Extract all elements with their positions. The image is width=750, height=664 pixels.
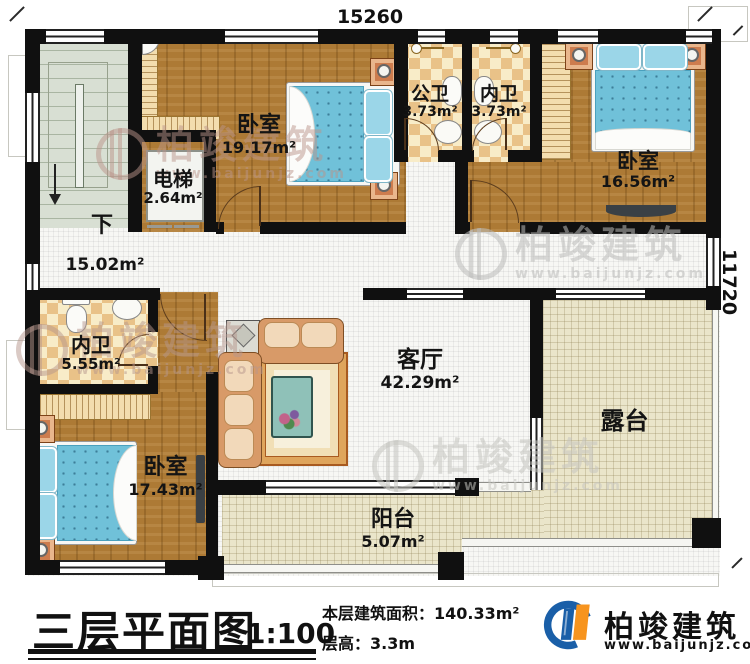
- door-leaf: [505, 118, 507, 150]
- ensuite-top-label: 内卫: [468, 84, 530, 105]
- elevator-door: [174, 225, 199, 228]
- wall: [455, 222, 470, 234]
- sofa-cushion: [264, 322, 300, 348]
- pillow: [364, 136, 392, 182]
- tv-console: [606, 205, 676, 217]
- wall: [25, 288, 160, 300]
- window: [558, 29, 598, 44]
- window: [225, 29, 318, 44]
- ensuite-left-area: 5.55m²: [50, 356, 132, 373]
- nightstand: [565, 42, 593, 70]
- toilet: [66, 305, 87, 333]
- window: [407, 288, 463, 300]
- stair-direction-arrow: [54, 164, 56, 196]
- balcony-railing: [222, 564, 462, 573]
- wall: [438, 150, 474, 162]
- balcony-railing: [479, 482, 531, 492]
- floor-plan-sheet: 15260 11720 柏竣建筑 www.baijunjz.com 柏竣建筑 w…: [0, 0, 750, 664]
- door-leaf: [259, 186, 261, 226]
- wall: [25, 384, 158, 394]
- window: [556, 288, 645, 300]
- stair-rail: [75, 84, 84, 188]
- dimension-tick: [9, 6, 25, 22]
- dimension-right: 11720: [720, 246, 740, 318]
- bedroom-2-label: 卧室: [588, 150, 688, 173]
- bedroom-1-area: 19.17m²: [199, 139, 319, 157]
- wall: [463, 288, 556, 300]
- window: [25, 93, 40, 162]
- window: [46, 29, 104, 44]
- wall: [260, 222, 406, 234]
- sofa-cushion: [224, 394, 254, 426]
- valve: [510, 43, 521, 54]
- company-website: www.baijunjz.com: [604, 638, 750, 653]
- elevator-door: [147, 225, 172, 228]
- sink: [434, 120, 462, 144]
- hall-area: 15.02m²: [55, 256, 155, 275]
- elevator-label: 电梯: [132, 168, 214, 190]
- balcony-area: 5.07m²: [343, 533, 443, 551]
- elevator-area: 2.64m²: [132, 190, 214, 207]
- bedroom-3-area: 17.43m²: [113, 481, 218, 499]
- wall: [530, 29, 542, 162]
- public-bath-label: 公卫: [398, 84, 462, 105]
- bedroom-1-label: 卧室: [199, 114, 319, 138]
- sofa-cushion: [224, 428, 254, 460]
- living-room-label: 客厅: [370, 348, 470, 373]
- public-bath-area: 3.73m²: [398, 105, 462, 120]
- bedroom-2-area: 16.56m²: [588, 173, 688, 191]
- corner-post: [198, 556, 224, 580]
- wall: [508, 150, 542, 162]
- wall: [520, 222, 706, 234]
- window: [60, 560, 165, 575]
- title-underline-thin: [28, 658, 316, 660]
- wall: [645, 288, 721, 300]
- sofa-cushion: [224, 360, 254, 392]
- pillow: [643, 44, 687, 70]
- drip-line: [212, 573, 719, 587]
- wall: [148, 300, 158, 332]
- lamp-table: [226, 320, 260, 354]
- valve: [411, 43, 422, 54]
- bedroom-3-label: 卧室: [113, 456, 218, 480]
- corner-post: [692, 518, 721, 548]
- wall: [530, 300, 543, 418]
- terrace-label: 露台: [577, 408, 672, 434]
- sofa-cushion: [301, 322, 337, 348]
- ensuite-left-label: 内卫: [50, 334, 132, 356]
- window: [418, 29, 445, 44]
- ensuite-top-area: 3.73m²: [468, 105, 530, 120]
- flower-decor: [274, 402, 304, 430]
- window: [490, 29, 518, 44]
- stair-direction-label: 下: [84, 214, 120, 238]
- balcony-label: 阳台: [343, 508, 443, 532]
- title-underline: [28, 649, 316, 654]
- pillow: [364, 90, 392, 136]
- bed-sheet: [595, 128, 691, 150]
- terrace-railing: [712, 310, 719, 522]
- terrace-railing: [462, 538, 694, 547]
- door-leaf: [204, 294, 206, 340]
- door-leaf: [470, 180, 472, 222]
- window: [530, 418, 543, 490]
- dimension-tick: [731, 557, 742, 568]
- window: [686, 29, 712, 44]
- corner-post: [438, 552, 464, 580]
- wall: [363, 288, 407, 300]
- wardrobe: [140, 46, 158, 122]
- floor-height-text: 层高：3.3m: [322, 630, 415, 654]
- sliding-door: [266, 480, 455, 495]
- door-leaf: [404, 118, 406, 150]
- company-logo-icon: [543, 596, 599, 658]
- window: [25, 264, 40, 290]
- wall: [455, 478, 479, 496]
- floor-area-text: 本层建筑面积：140.33m²: [322, 600, 519, 624]
- pillow: [597, 44, 641, 70]
- living-room-area: 42.29m²: [365, 374, 475, 393]
- dimension-top: 15260: [315, 6, 425, 26]
- stair-arrow-head: [49, 194, 61, 205]
